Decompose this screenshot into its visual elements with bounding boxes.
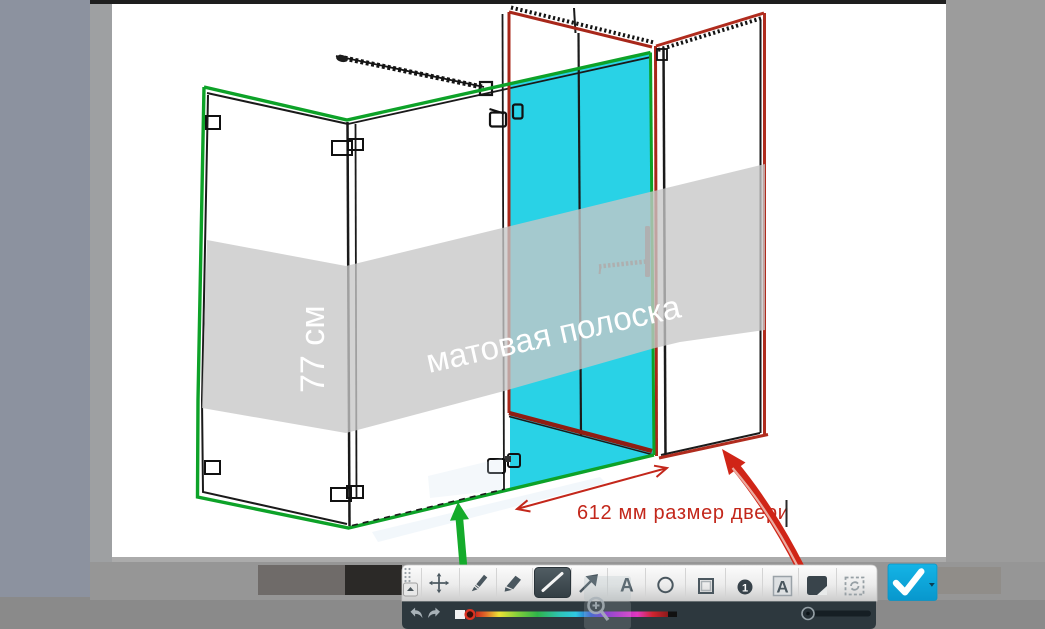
svg-text:77 см: 77 см bbox=[294, 305, 332, 393]
svg-text:A: A bbox=[776, 578, 788, 597]
svg-text:612 мм размер двери: 612 мм размер двери bbox=[577, 502, 790, 524]
svg-text:1: 1 bbox=[742, 583, 748, 595]
